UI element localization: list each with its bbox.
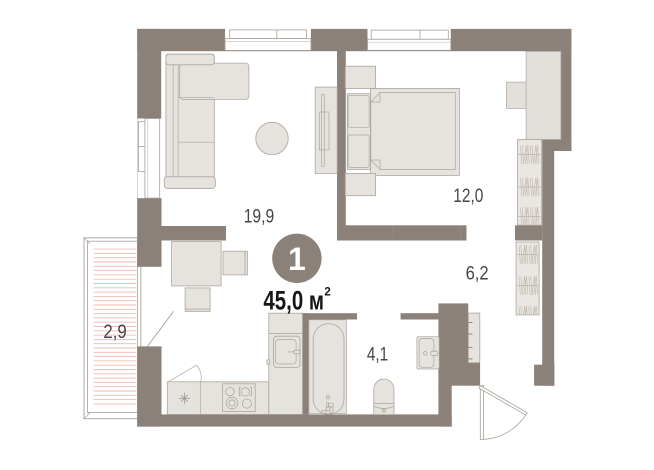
svg-text:45,0 м: 45,0 м — [263, 285, 324, 315]
svg-text:6,2: 6,2 — [466, 263, 489, 285]
svg-text:19,9: 19,9 — [244, 206, 275, 228]
svg-text:12,0: 12,0 — [453, 185, 483, 207]
svg-text:1: 1 — [288, 241, 306, 277]
svg-text:2: 2 — [324, 287, 330, 299]
svg-text:4,1: 4,1 — [367, 344, 388, 366]
svg-text:2,9: 2,9 — [103, 321, 126, 343]
